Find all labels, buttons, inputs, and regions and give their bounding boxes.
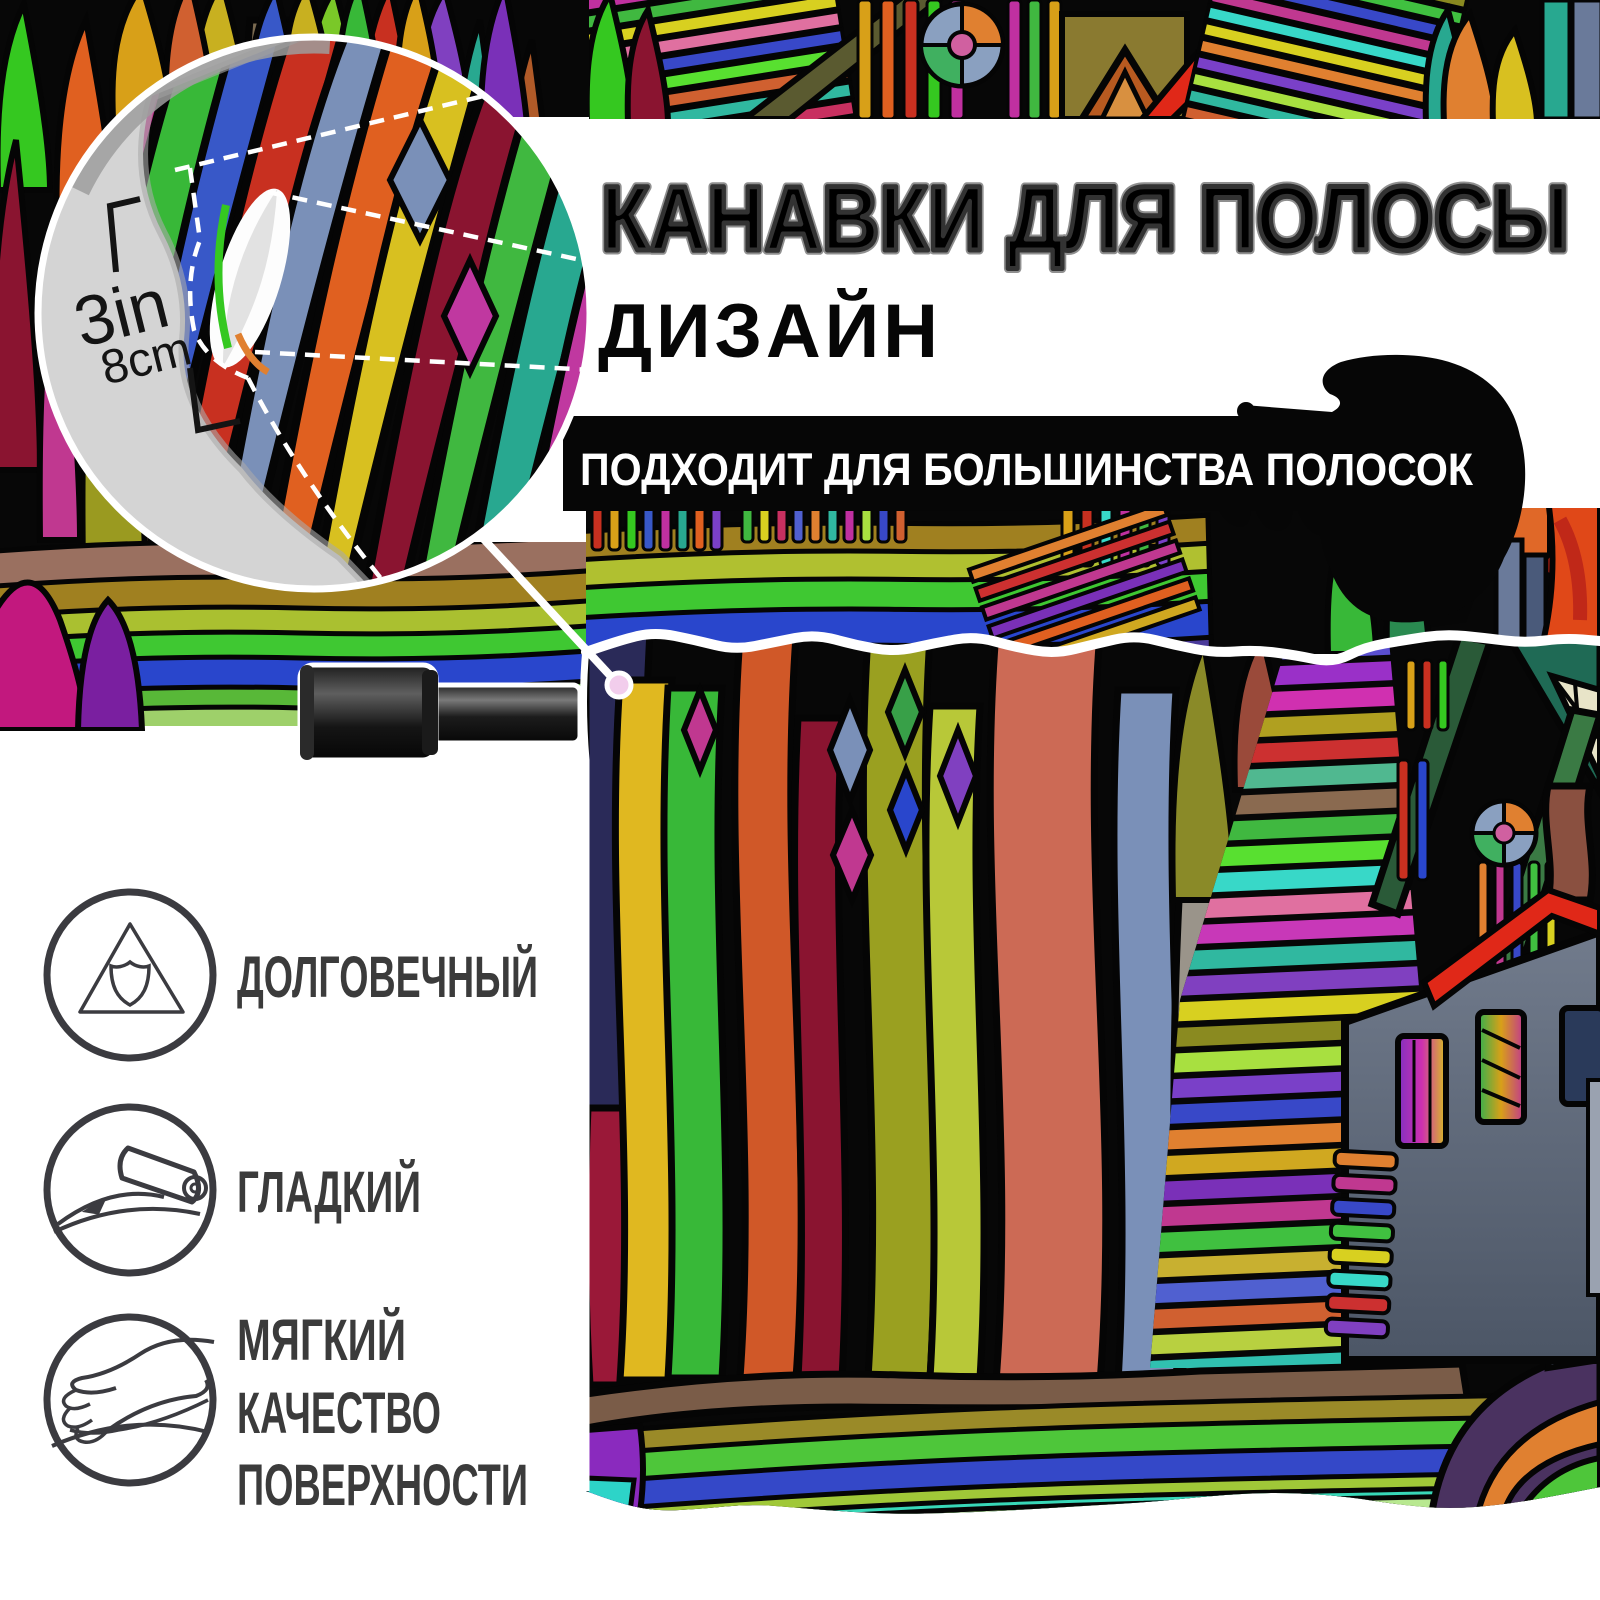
svg-text:ПОВЕРХНОСТИ: ПОВЕРХНОСТИ (237, 1453, 528, 1518)
svg-text:ДИЗАЙН: ДИЗАЙН (598, 288, 938, 374)
svg-text:КАНАВКИ ДЛЯ ПОЛОСЫ: КАНАВКИ ДЛЯ ПОЛОСЫ (601, 168, 1569, 270)
svg-text:ПОДХОДИТ ДЛЯ БОЛЬШИНСТВА ПОЛОС: ПОДХОДИТ ДЛЯ БОЛЬШИНСТВА ПОЛОСОК (580, 444, 1473, 495)
svg-text:МЯГКИЙ: МЯГКИЙ (237, 1308, 406, 1373)
svg-text:КАЧЕСТВО: КАЧЕСТВО (237, 1381, 441, 1446)
svg-text:ГЛАДКИЙ: ГЛАДКИЙ (237, 1160, 421, 1225)
svg-text:ДОЛГОВЕЧНЫЙ: ДОЛГОВЕЧНЫЙ (237, 945, 538, 1010)
